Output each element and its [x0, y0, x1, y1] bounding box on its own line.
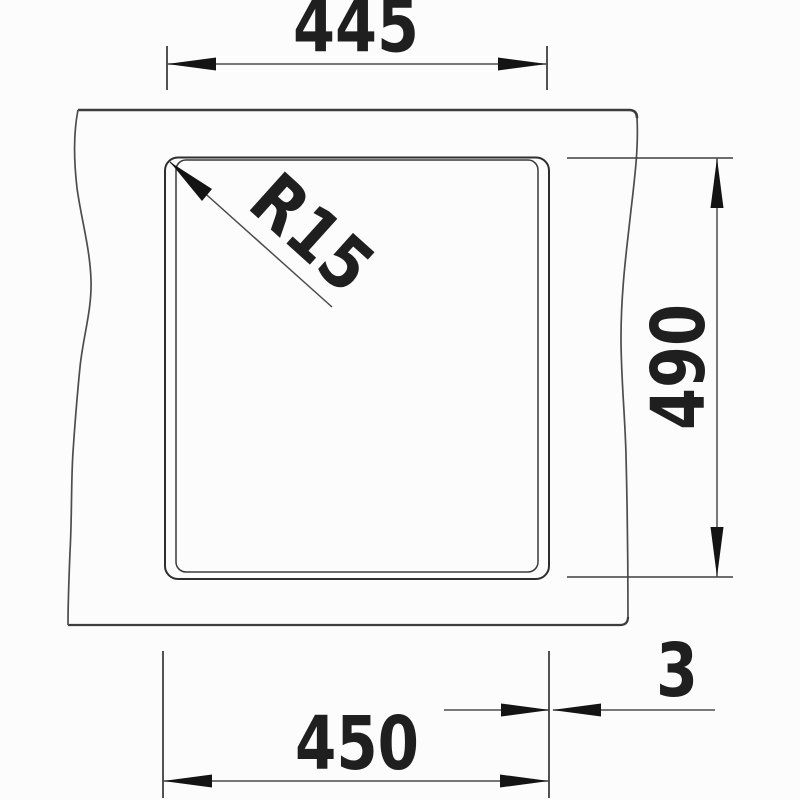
- countertop-left-break-edge: [68, 110, 91, 625]
- arrowhead-up-icon: [711, 158, 724, 208]
- dimension-side-height: 490: [567, 158, 733, 577]
- bottom-width-label: 450: [295, 701, 419, 787]
- arrowhead-right-icon: [501, 704, 550, 717]
- dimension-top-width: 445: [167, 0, 547, 90]
- countertop-right-break-edge: [621, 118, 637, 617]
- side-height-label: 490: [636, 304, 722, 430]
- countertop-top-edge: [78, 110, 637, 118]
- arrowhead-down-icon: [711, 527, 724, 577]
- arrowhead-right-icon: [498, 58, 547, 71]
- sink-technical-drawing: R15 445 490 450: [0, 0, 800, 800]
- top-width-label: 445: [293, 0, 419, 70]
- radius-dimension: R15: [170, 157, 390, 309]
- dimension-edge-gap: 3: [444, 628, 715, 717]
- arrowhead-left-icon: [167, 58, 216, 71]
- arrowhead-right-icon: [500, 775, 549, 788]
- arrowhead-left-icon: [163, 775, 212, 788]
- dimension-bottom-width: 450: [163, 651, 549, 798]
- sink-technical-drawing-page: R15 445 490 450: [0, 0, 800, 800]
- countertop-bottom-edge: [68, 617, 628, 625]
- edge-gap-label: 3: [656, 628, 698, 714]
- arrowhead-left-icon: [552, 704, 601, 717]
- countertop-outline: [68, 110, 637, 625]
- radius-label: R15: [234, 157, 390, 309]
